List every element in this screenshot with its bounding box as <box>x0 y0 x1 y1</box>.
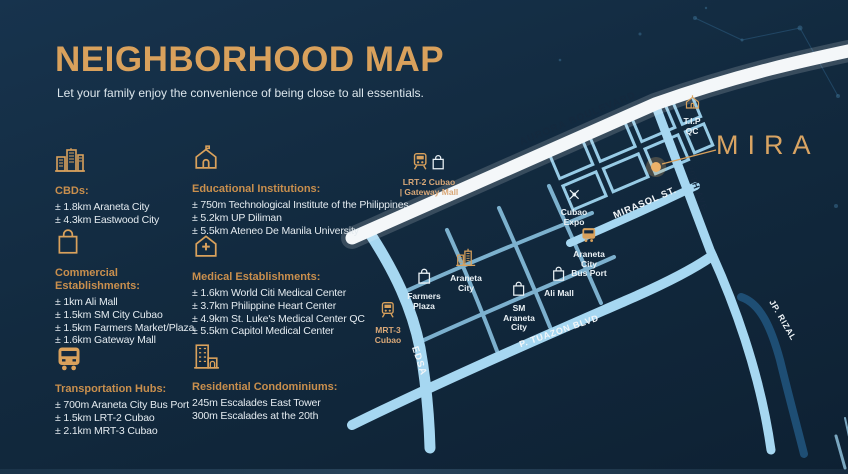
medical-cross-icon <box>192 232 442 260</box>
legend-item: ± 5.2km UP Diliman <box>192 212 442 225</box>
poi-label: SM Araneta City <box>503 304 535 333</box>
legend-category-medical: Medical Establishments: ± 1.6km World Ci… <box>192 232 442 338</box>
condominium-icon <box>192 342 442 370</box>
legend-category-title: CBDs: <box>55 185 195 198</box>
legend-item: ± 700m Araneta City Bus Port <box>55 399 215 412</box>
mira-logo: MIRA <box>716 130 820 161</box>
legend-item: ± 4.3km Eastwood City <box>55 214 195 227</box>
legend-item: ± 1.5km SM City Cubao <box>55 309 195 322</box>
crossed-tools-icon <box>567 188 580 206</box>
city-buildings-icon <box>55 146 195 174</box>
neighborhood-map-poster: { "page": { "title": "NEIGHBORHOOD MAP",… <box>0 0 848 474</box>
poi-label: Araneta City Bus Port <box>571 250 606 279</box>
legend-item: ± 1km Ali Mall <box>55 296 195 309</box>
legend-item: 245m Escalades East Tower <box>192 397 442 410</box>
school-icon <box>684 94 700 115</box>
bottom-edge-glow <box>0 469 848 474</box>
shopping-bag-icon <box>551 266 566 287</box>
legend-category-residential: Residential Condominiums: 245m Escalades… <box>192 342 442 423</box>
legend-category-title: Residential Condominiums: <box>192 381 442 394</box>
shopping-bag-icon <box>512 281 527 302</box>
jp-rizal-road <box>741 297 804 454</box>
legend-category-title: Medical Establishments: <box>192 271 442 284</box>
city-buildings-icon <box>456 248 477 272</box>
page-title: NEIGHBORHOOD MAP <box>55 40 444 80</box>
page-subtitle: Let your family enjoy the convenience of… <box>57 86 424 100</box>
bus-icon <box>580 226 597 248</box>
poi-label: Araneta City <box>450 274 482 293</box>
poi-araneta-bus-port: Araneta City Bus Port <box>571 226 606 279</box>
legend-item: ± 1.8km Araneta City <box>55 201 195 214</box>
stage: AURORA BOULEVARD MIRASOL ST. P. TUAZON B… <box>0 0 848 474</box>
bus-icon <box>55 344 215 372</box>
shopping-bag-icon <box>55 228 195 256</box>
poi-ali-mall: Ali Mall <box>544 266 574 299</box>
legend-item: ± 1.6km World Citi Medical Center <box>192 287 442 300</box>
corner-streaks <box>836 418 848 468</box>
legend-category-title: Commercial Establishments: <box>55 267 195 293</box>
legend-item: ± 1.5km LRT-2 Cubao <box>55 412 215 425</box>
legend-category-commercial: Commercial Establishments: ± 1km Ali Mal… <box>55 228 195 347</box>
legend-item: ± 3.7km Philippine Heart Center <box>192 300 442 313</box>
legend-item: ± 750m Technological Institute of the Ph… <box>192 199 442 212</box>
poi-araneta-city: Araneta City <box>450 248 482 293</box>
poi-sm-araneta-city: SM Araneta City <box>503 281 535 333</box>
legend-item: ± 5.5km Capitol Medical Center <box>192 325 442 338</box>
legend-item: 300m Escalades at the 20th <box>192 410 442 423</box>
legend-item: ± 2.1km MRT-3 Cubao <box>55 425 215 438</box>
poi-cubao-expo: Cubao Expo <box>561 188 587 227</box>
poi-label: Ali Mall <box>544 289 574 299</box>
poi-tip-qc: T.I.P QC <box>683 94 700 136</box>
poi-label: T.I.P QC <box>683 117 700 136</box>
legend-category-transportation: Transportation Hubs: ± 700m Araneta City… <box>55 344 215 437</box>
legend-category-cbds: CBDs: ± 1.8km Araneta City ± 4.3km Eastw… <box>55 146 195 227</box>
legend-category-title: Educational Institutions: <box>192 183 442 196</box>
school-icon <box>192 144 442 172</box>
legend-item: ± 4.9km St. Luke's Medical Center QC <box>192 313 442 326</box>
legend-category-title: Transportation Hubs: <box>55 383 215 396</box>
legend-item: ± 1.5km Farmers Market/Plaza <box>55 322 195 335</box>
legend-category-educational: Educational Institutions: ± 750m Technol… <box>192 144 442 237</box>
poi-label: Cubao Expo <box>561 208 587 227</box>
